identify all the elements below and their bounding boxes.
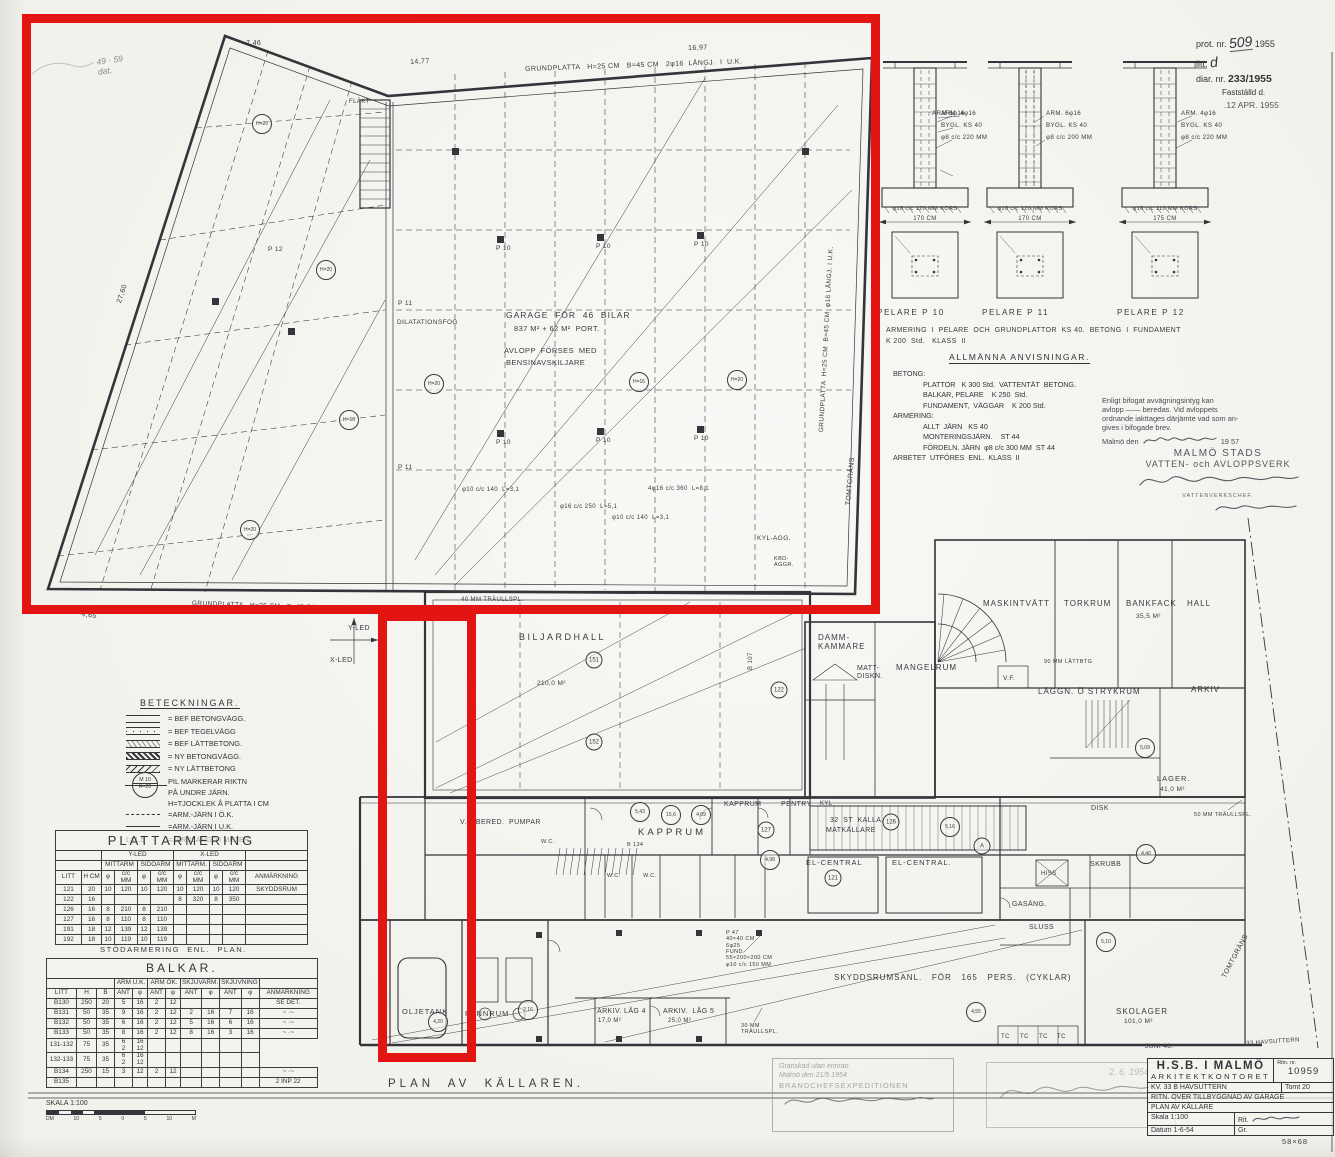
signature (1128, 469, 1308, 493)
plan-label: 90 MM LÄTTBTG (1044, 659, 1092, 665)
table-row: B1352 INP 22 (47, 1077, 318, 1087)
table-cell: 12 (166, 1067, 181, 1077)
legend-note: PIL MARKERAR RIKTN (168, 777, 356, 786)
org-dept: ARKITEKTKONTORET (1151, 1072, 1270, 1081)
scale-bar (46, 1110, 196, 1115)
table-cell: 5 (181, 1019, 202, 1029)
va-date-year: 19 57 (1221, 437, 1240, 446)
circle-marker: 4,40 (1136, 844, 1156, 864)
legend-label: =ARM.-JÄRN I Ö.K. (168, 810, 234, 819)
plan-label: MATKÄLLARE (826, 827, 876, 835)
table-cell: 18 (82, 935, 102, 945)
stamp-signature (993, 1077, 1163, 1107)
table-cell: 139 (115, 925, 138, 935)
va-line: Enligt bifogat avvägningsintyg kan (1102, 396, 1334, 405)
table-cell (133, 1077, 148, 1087)
table-title: BALKAR. (47, 959, 318, 979)
table-cell (166, 1039, 181, 1053)
table-row: 192181011910119 (56, 935, 308, 945)
table-cell (187, 915, 210, 925)
table-cell (241, 1067, 259, 1077)
col-anm: ANMÄRKNING (246, 871, 308, 885)
legend-row: = NY LÄTTBETONG (126, 764, 356, 773)
table-cell: 16 (202, 1029, 220, 1039)
col-arm-ok: ARM ÖK. (148, 979, 181, 989)
approval-stamp-left: Granskad utan erinranMalmö den 21/5 1954… (772, 1058, 954, 1132)
table-cell: 8 (210, 895, 223, 905)
pelare-label: PELARE P 11 (982, 308, 1078, 317)
table-cell (220, 999, 242, 1009)
table-cell: 8 (181, 1029, 202, 1039)
table-cell (223, 915, 246, 925)
plan-label: X-LED (330, 657, 353, 665)
circle-marker: 126 (883, 814, 900, 831)
drawn-by-label: Rit. (1238, 1117, 1249, 1124)
table-cell: 6 2 (115, 1039, 133, 1053)
pelare-label: ARM. 6φ16 (1046, 110, 1081, 117)
circle-marker: 4,98 (760, 850, 780, 870)
legend: BETECKNINGAR. = BEF BETONGVÄGG. = BEF TE… (126, 698, 356, 847)
table-cell: B131 (47, 1009, 77, 1019)
table-cell: 35 (97, 1019, 115, 1029)
legend-row: = BEF LÄTTBETONG. (126, 739, 356, 748)
plan-label: LAGER. (1157, 775, 1191, 784)
red-highlight-1 (22, 14, 880, 614)
plan-caption: PLAN AV KÄLLAREN. (388, 1078, 584, 1091)
plan-label: KAPPRUM (638, 828, 706, 839)
plan-label: BANKFACK (1126, 599, 1177, 608)
table-cell: 119 (151, 935, 174, 945)
table-cell: 16 (82, 915, 102, 925)
table-cell (210, 935, 223, 945)
table-cell: 16 (241, 1009, 259, 1019)
plan-label: 50 MM TRÄULLSPL. (1194, 812, 1252, 818)
plan-label: JUNI 48. (1145, 1043, 1174, 1050)
pelare-label: φ8 c/c 200 MM (1046, 134, 1092, 141)
table-cell: 121 (56, 885, 82, 895)
water-authority-stamp: Enligt bifogat avvägningsintyg kanavlopp… (1102, 396, 1334, 515)
table-cell (187, 935, 210, 945)
table-cell: SE DET. (259, 999, 317, 1009)
title-row-scale: Skala 1:100 Rit. (1148, 1112, 1333, 1125)
plan-label: Y-LED (348, 625, 370, 633)
legend-label: = BEF LÄTTBETONG. (168, 739, 242, 748)
table-cell: B135 (47, 1077, 77, 1087)
plan-label: TC (1057, 1034, 1066, 1041)
table-row: 191181213912139 (56, 925, 308, 935)
table-cell: 16 (82, 895, 102, 905)
legend-title: BETECKNINGAR. (140, 698, 240, 709)
table-cell: B134 (47, 1067, 77, 1077)
table-cell: 120 (151, 885, 174, 895)
legend-note: H=TJOCKLEK Å PLATTA I CM (168, 799, 356, 808)
plan-label: 30 MM TRÄULLSPL. (741, 1023, 778, 1036)
blueprint-sheet: prot. nr. 509 1955 litt. d diar. nr. 233… (0, 0, 1335, 1157)
table-cell (174, 925, 187, 935)
circle-marker: 5,43 (630, 802, 650, 822)
col-hcm: H CM (82, 871, 102, 885)
circle-marker: 2,16 (518, 1000, 538, 1020)
registry-block: prot. nr. 509 1955 litt. d diar. nr. 233… (1196, 34, 1334, 113)
date-field-value: 1-6-54 (1174, 1127, 1194, 1134)
circle-marker: 4,55 (966, 1002, 986, 1022)
fastst-label: Fastställd d. (1196, 88, 1334, 97)
table-cell: 75 (77, 1053, 97, 1067)
plan-label: ARKIV. LÅG 5 (663, 1008, 714, 1016)
table-row: 131-13275356 216 12 (47, 1039, 318, 1053)
plan-label: EL-CENTRAL. (892, 859, 952, 868)
table-row: 1261682108210 (56, 905, 308, 915)
table-cell: 2 (148, 1029, 166, 1039)
table-cell (246, 915, 308, 925)
table-cell: 126 (56, 905, 82, 915)
table-cell: 50 (77, 1009, 97, 1019)
table-cell: 5 (115, 999, 133, 1009)
legend-row: = NY BETONGVÄGG. (126, 752, 356, 761)
table-row: 132-13375356 216 12 (47, 1053, 318, 1067)
table-row: B1315035916212216716~ ·~ (47, 1009, 318, 1019)
table-cell (181, 999, 202, 1009)
plan-label: DAMM- KAMMARE (818, 633, 865, 651)
litt-row: litt. d (1196, 54, 1334, 70)
table-cell: 50 (77, 1019, 97, 1029)
table-cell (246, 905, 308, 915)
table-cell: 6 (115, 1019, 133, 1029)
table-cell (202, 1053, 220, 1067)
table-cell: 20 (97, 999, 115, 1009)
table-cell: 120 (115, 885, 138, 895)
table-cell (223, 935, 246, 945)
stamp-lines: Granskad utan erinranMalmö den 21/5 1954… (779, 1063, 947, 1090)
table-cell: 250 (77, 1067, 97, 1077)
table-row: 1271681108110 (56, 915, 308, 925)
support-reinforcement-note: STÖDARMERING ENL. PLAN. (100, 946, 247, 955)
plan-label: KYL (820, 801, 833, 808)
pelare-label: 170 CM (985, 216, 1075, 223)
table-cell: 12 (166, 999, 181, 1009)
va-org1: MALMÖ STADS (1102, 448, 1334, 459)
title-row-date: Datum 1-6-54 Gr. (1148, 1125, 1333, 1135)
table-cell (174, 905, 187, 915)
sheet-size-note: 58×68 (1282, 1138, 1308, 1147)
anv-title: ALLMÄNNA ANVISNINGAR. (949, 352, 1090, 364)
table-cell (181, 1039, 202, 1053)
col-sidoarm: SIDOARM (138, 861, 174, 871)
pelare-note-2: K 200 Std. KLASS II (886, 338, 966, 346)
pelare-label: BYGL. KS 40 (1046, 122, 1087, 129)
table-cell: 8 (102, 905, 115, 915)
table-cell: 6 2 (115, 1053, 133, 1067)
table-cell: 12 (166, 1009, 181, 1019)
table-cell: ~ ·~ (259, 1029, 317, 1039)
table-cell: 127 (56, 915, 82, 925)
table-cell: 8 (174, 895, 187, 905)
table-cell (202, 1067, 220, 1077)
table-cell: 9 (115, 1009, 133, 1019)
legend-label: = BEF TEGELVÄGG (168, 727, 236, 736)
gr-field-label: Gr. (1234, 1126, 1333, 1135)
table-cell: 192 (56, 935, 82, 945)
scale-field-label: Skala (1151, 1114, 1169, 1121)
col-sidoarm: SIDOARM (210, 861, 246, 871)
beam-table: BALKAR. ARM U.K. ARM ÖK. SKJUVARM. SKJUV… (46, 958, 318, 1088)
plan-label: SKYDDSRUMSANL. FÖR 165 PERS. (CYKLAR) (834, 973, 1072, 982)
drawing-title: PLAN AV KÄLLARE (1148, 1103, 1333, 1112)
circle-marker: 127 (758, 822, 775, 839)
table-cell: 3 (220, 1029, 242, 1039)
table-cell: 35 (97, 1029, 115, 1039)
table-cell: 12 (166, 1019, 181, 1029)
table-cell: 50 (77, 1029, 97, 1039)
table-cell: 119 (115, 935, 138, 945)
plan-label: SKOLAGER (1116, 1007, 1168, 1016)
table-title: PLATTARMERING (56, 831, 308, 851)
wall-symbol-bef-tegel (126, 727, 160, 735)
col-mittarm: MITTARM (102, 861, 138, 871)
col-skjuvning: SKJUVNING (220, 979, 260, 989)
stamp-signature (779, 1092, 939, 1110)
pelare-label: φ10 c/c 120 MM KORS (880, 206, 970, 212)
pelare-label: PELARE P 12 (1117, 308, 1213, 317)
table-cell (223, 925, 246, 935)
fastst-date: .12 APR. 1955 (1196, 100, 1334, 110)
col-mittarm: MITTARM. (174, 861, 210, 871)
wall-symbol-ny-betong (126, 752, 160, 760)
table-row: B13425015312212~ ·~ (47, 1067, 318, 1077)
circle-marker: 152 (586, 734, 603, 751)
table-cell: 2 (148, 1009, 166, 1019)
table-cell (166, 1053, 181, 1067)
plan-label: TC (1020, 1034, 1029, 1041)
beam-table-body: B13025020516212SE DET.B13150359162122167… (47, 999, 318, 1088)
pelare-label: ARM 6φ16 (932, 110, 965, 117)
table-cell: 132-133 (47, 1053, 77, 1067)
plan-label: TORKRUM (1064, 599, 1111, 608)
va-line: ordnande iakttages därjämte vad som an- (1102, 414, 1334, 423)
table-cell: 16 (202, 1009, 220, 1019)
plan-label: B 107 (748, 652, 755, 670)
circle-marker: 122 (771, 682, 788, 699)
table-cell: B130 (47, 999, 77, 1009)
table-cell (246, 935, 308, 945)
circle-marker: A (974, 838, 991, 855)
plan-label: 210,0 M² (537, 680, 566, 687)
table-cell: 16 (133, 1009, 148, 1019)
table-cell (210, 925, 223, 935)
table-cell: 2 INP 22 (259, 1077, 317, 1087)
table-cell: 6 (220, 1019, 242, 1029)
col-litt: LITT (56, 871, 82, 885)
plan-label: 41,0 M² (1160, 786, 1185, 793)
va-date-prefix: Malmö den (1102, 437, 1139, 446)
scale-label: SKALA 1:100 (46, 1100, 88, 1107)
table-cell (138, 895, 151, 905)
va-line: avlopp —— beredas. Vid avloppets (1102, 405, 1334, 414)
legend-label: = NY BETONGVÄGG. (168, 752, 241, 761)
table-cell: 35 (97, 1039, 115, 1053)
table-cell: 10 (210, 885, 223, 895)
table-cell: B132 (47, 1019, 77, 1029)
table-cell: 10 (138, 935, 151, 945)
table-cell: 120 (187, 885, 210, 895)
table-cell: 2 (148, 1067, 166, 1077)
plan-label: TC (1039, 1034, 1048, 1041)
plan-label: GASÄNG. (1012, 901, 1047, 909)
table-cell: 250 (77, 999, 97, 1009)
littera-bottom: H=20 (133, 783, 157, 790)
table-cell: 7 (220, 1009, 242, 1019)
plan-label: 101,0 M² (1124, 1018, 1153, 1025)
plan-label: SKRUBB (1090, 861, 1121, 869)
table-cell (181, 1067, 202, 1077)
plan-label: 25,0 M² (668, 1018, 691, 1025)
litt-value: d (1209, 54, 1218, 71)
col-skjuvarm: SKJUVARM. (181, 979, 220, 989)
table-cell (181, 1077, 202, 1087)
prot-value: 509 (1228, 33, 1253, 52)
legend-row: = BEF BETONGVÄGG. (126, 714, 356, 723)
red-highlight-2 (378, 612, 476, 1062)
anv-line: BETONG: (893, 369, 1143, 378)
table-cell (246, 925, 308, 935)
drawing-subject: RITN. ÖVER TILLBYGGNAD AV GARAGE (1148, 1093, 1333, 1102)
title-row-org: H.S.B. I MALMÖ ARKITEKTKONTORET Ritn. nr… (1148, 1059, 1333, 1082)
legend-label: = NY LÄTTBETONG (168, 764, 236, 773)
table-cell (115, 895, 138, 905)
col-group-xled: X-LED (174, 851, 246, 861)
table-row: B13025020516212SE DET. (47, 999, 318, 1009)
table-cell (241, 1039, 259, 1053)
plan-label: V.F. (1003, 675, 1015, 682)
plan-label: MATT- DISKN. (857, 665, 883, 681)
table-cell (210, 915, 223, 925)
title-row-block: KV. 33 B HAVSUTTERN Tomt 20 (1148, 1082, 1333, 1092)
pelare-details (879, 62, 1211, 298)
org-name: H.S.B. I MALMÖ (1151, 1060, 1270, 1072)
pelare-label: 175 CM (1120, 216, 1210, 223)
table-cell: 110 (115, 915, 138, 925)
table-cell: 122 (56, 895, 82, 905)
legend-label: = BEF BETONGVÄGG. (168, 714, 245, 723)
table-cell: ~ ·~ (259, 1009, 317, 1019)
table-cell: 16 12 (133, 1053, 148, 1067)
circle-marker: 5,09 (1135, 738, 1155, 758)
table-cell: 10 (174, 885, 187, 895)
title-row-plan: PLAN AV KÄLLARE (1148, 1102, 1333, 1112)
plan-label: LÄGGN. Ö STRYKRUM (1038, 687, 1141, 696)
table-cell: 15 (97, 1067, 115, 1077)
anv-line: PLATTOR K 300 Std. VATTENTÄT BETONG. (893, 380, 1143, 389)
stamp-line: Malmö den 21/5 1954 (779, 1072, 947, 1079)
plan-label: PENTRY (781, 801, 812, 809)
table-cell: 16 (241, 1029, 259, 1039)
date-field-label: Datum (1151, 1127, 1172, 1134)
table-cell: SKYDDSRUM (246, 885, 308, 895)
plan-label: DISK (1091, 805, 1109, 813)
col-arm-uk: ARM U.K. (115, 979, 148, 989)
va-lines: Enligt bifogat avvägningsintyg kanavlopp… (1102, 396, 1334, 432)
block-designation: KV. 33 B HAVSUTTERN (1148, 1083, 1281, 1092)
table-cell (187, 925, 210, 935)
pelare-label: φ10 c/c 120 MM KORS (985, 206, 1075, 212)
table-row: 1212010120101201012010120SKYDDSRUM (56, 885, 308, 895)
plan-label: TC (1001, 1034, 1010, 1041)
table-cell (187, 905, 210, 915)
table-cell (220, 1039, 242, 1053)
prot-row: prot. nr. 509 1955 (1196, 34, 1334, 51)
plan-label: HALL (1187, 599, 1211, 608)
table-cell: 16 (241, 1019, 259, 1029)
table-cell: 16 (133, 999, 148, 1009)
table-cell: 16 (82, 905, 102, 915)
table-cell: 110 (151, 915, 174, 925)
plan-label: SLUSS (1029, 924, 1054, 932)
drawing-number: 10959 (1277, 1066, 1330, 1077)
table-cell: 10 (138, 885, 151, 895)
slab-reinforcement-table: PLATTARMERING Y-LED X-LED MITTARM SIDOAR… (55, 830, 308, 945)
table-cell: 35 (97, 1053, 115, 1067)
table-cell: 8 (115, 1029, 133, 1039)
table-cell (210, 905, 223, 915)
table-cell (241, 999, 259, 1009)
plan-label: KAPPRUM (724, 801, 761, 809)
pelare-label: φ10 c/c 110 MM KORS (1120, 206, 1210, 212)
va-line: gives i bifogade brev. (1102, 423, 1334, 432)
stamp-line: BRANDCHEFSEXPEDITIONEN (779, 1081, 947, 1090)
table-cell: 16 (133, 1019, 148, 1029)
pelare-label: BYGL. KS 40 (1181, 122, 1222, 129)
title-block: H.S.B. I MALMÖ ARKITEKTKONTORET Ritn. nr… (1147, 1058, 1334, 1136)
table-cell: 8 (138, 915, 151, 925)
table-cell (174, 935, 187, 945)
plan-label: 17,0 M² (598, 1018, 621, 1025)
table-cell: 350 (223, 895, 246, 905)
table-cell: 8 (138, 905, 151, 915)
litt-label: litt. (1196, 59, 1208, 69)
prot-year: 1955 (1255, 39, 1275, 49)
legend-row: = BEF TEGELVÄGG (126, 727, 356, 736)
table-cell (202, 999, 220, 1009)
legend-note: PÅ UNDRE JÄRN. (168, 788, 356, 797)
table-row: B1325035616212516616~ ·~ (47, 1019, 318, 1029)
wall-symbol-bef-betong (126, 715, 160, 723)
table-cell: ~ ·~ (259, 1019, 317, 1029)
table-cell (220, 1053, 242, 1067)
table-cell: 12 (133, 1067, 148, 1077)
table-cell: 12 (166, 1029, 181, 1039)
table-cell: 210 (115, 905, 138, 915)
table-cell (241, 1053, 259, 1067)
plan-label: HISS (1041, 871, 1057, 878)
table-cell: 75 (77, 1039, 97, 1053)
signature-2 (1212, 499, 1302, 515)
table-cell: 12 (138, 925, 151, 935)
scale-ticks: DM 10 5 0 5 10 M (46, 1116, 196, 1122)
table-cell (174, 915, 187, 925)
scale-block: SKALA 1:100 DM 10 5 0 5 10 M (46, 1100, 216, 1122)
table-cell (115, 1077, 133, 1087)
table-cell: 131-132 (47, 1039, 77, 1053)
littera-symbol: M 10 H=20 (132, 772, 158, 798)
dashed-bar-symbol (126, 814, 160, 815)
table-cell (148, 1039, 166, 1053)
table-cell: 8 (102, 915, 115, 925)
table-cell (148, 1077, 166, 1087)
table-cell: ~ ·~ (259, 1067, 317, 1077)
plan-label: P 47 40×40 CM 6φ25 FUND. 55×200×200 CM φ… (726, 930, 772, 968)
table-cell (220, 1077, 242, 1087)
legend-row: =ARM.-JÄRN I Ö.K. (126, 810, 356, 819)
